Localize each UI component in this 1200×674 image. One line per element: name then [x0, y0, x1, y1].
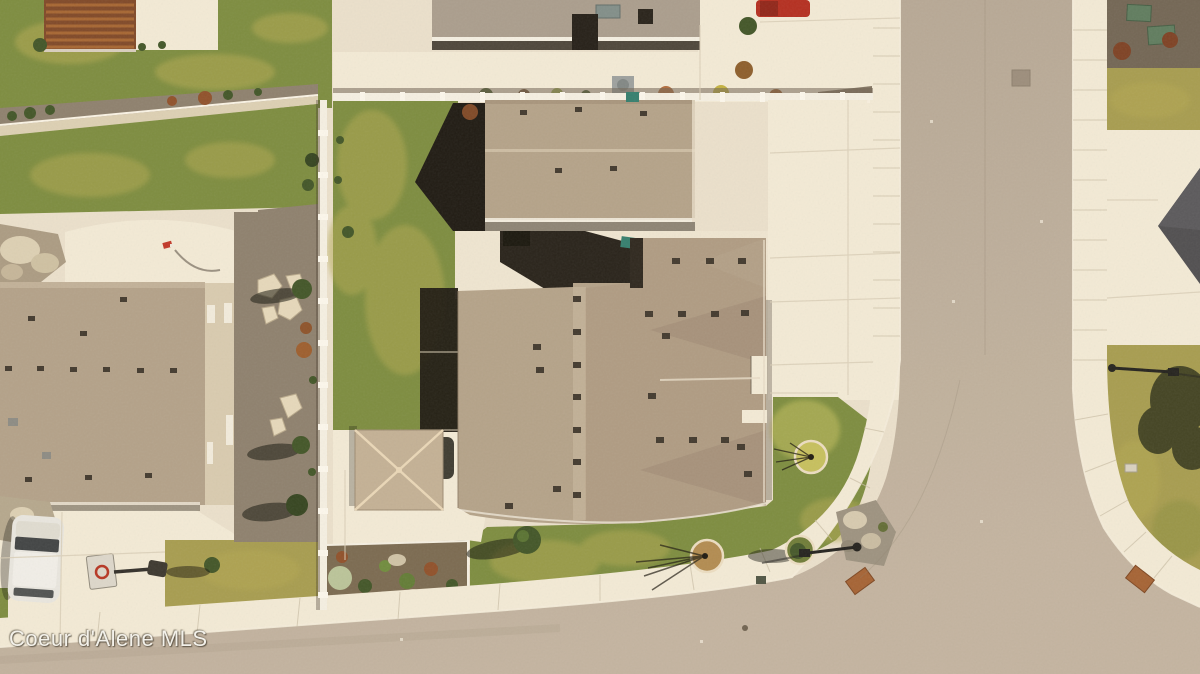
film-grain [0, 0, 1200, 674]
watermark: Coeur d'Alene MLS [9, 626, 208, 652]
aerial-photo: Coeur d'Alene MLS [0, 0, 1200, 674]
aerial-photo-canvas [0, 0, 1200, 674]
